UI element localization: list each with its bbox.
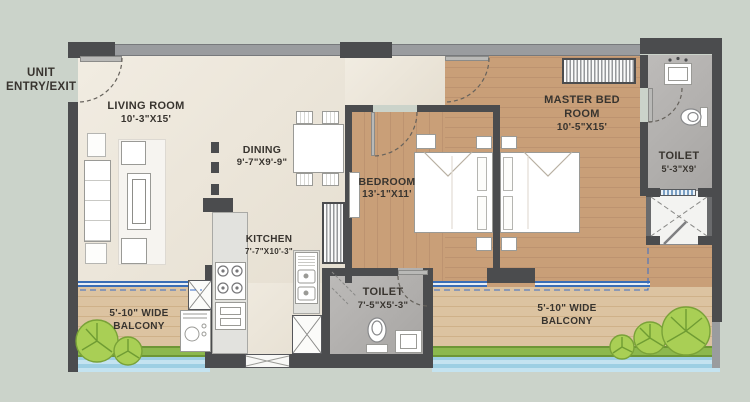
armchair-bottom <box>121 238 147 264</box>
kitchen-pillar <box>203 198 233 212</box>
entry-door-slab <box>80 56 122 62</box>
dining-chair-4 <box>322 173 339 186</box>
toilet-mid-label: TOILET 7'-5"X5'-3" <box>343 286 423 312</box>
toilet-right-door-slab <box>648 88 653 122</box>
master-nightstand-top <box>501 136 517 149</box>
bedroom-master-partition <box>493 112 500 268</box>
kitchen-dim: 7'-7"X10'-3" <box>234 247 304 257</box>
balcony-left-label: 5'-10" WIDE BALCONY <box>100 308 178 333</box>
sofa <box>84 160 111 242</box>
dining-chair-2 <box>322 111 339 124</box>
lift-corner-tl <box>646 188 660 197</box>
master-bench <box>501 237 517 251</box>
oven-inner <box>220 307 241 315</box>
dining-chair-1 <box>296 111 313 124</box>
bedroom-side-table <box>416 134 436 149</box>
dining-label: DINING 9'-7"X9'-9" <box>222 144 302 169</box>
unit-entry-label: UNIT ENTRY/EXIT <box>6 66 76 95</box>
toilet-right-wall-a <box>640 55 648 88</box>
dining-column-3 <box>211 184 219 195</box>
bedroom-nightstand-top <box>476 136 492 149</box>
kitchen-toilet-divider <box>322 268 330 354</box>
coffee-table-inner <box>132 179 146 224</box>
bedroom-bench <box>476 237 492 251</box>
balcony-right-water-edge <box>432 357 720 372</box>
bedroom-label: BEDROOM 13'-1"X11' <box>347 176 427 202</box>
lift-rail-left <box>646 197 651 236</box>
toilet-mid-basin <box>395 330 422 353</box>
toilet-right-dim: 5'-3"X9' <box>648 164 710 175</box>
bottom-wall-kitchen-b <box>290 354 302 368</box>
bedroom-pillow-2 <box>477 196 487 230</box>
oven <box>215 302 246 330</box>
balcony-right-planter <box>432 346 712 357</box>
toilet-right-label: TOILET 5'-3"X9' <box>648 150 710 175</box>
master-door-slab <box>445 56 489 61</box>
toilet-right-wc-tank <box>700 107 708 127</box>
duct-shaft-mid <box>292 315 322 354</box>
window-band-left <box>78 281 205 287</box>
toilet-mid-dim: 7'-5"X5'-3" <box>343 300 423 312</box>
master-bedroom-label: MASTER BED ROOM 10'-5"X15' <box>544 94 620 134</box>
balcony-right-label: 5'-10" WIDE BALCONY <box>528 303 606 328</box>
washer-unit <box>180 310 211 352</box>
top-wall-left <box>115 44 340 56</box>
window-band-right-2 <box>535 281 650 287</box>
bottom-window-kitchen <box>245 354 290 368</box>
toilet-right-basin <box>664 63 692 85</box>
master-bedroom-name: MASTER BED ROOM <box>544 94 620 120</box>
floor-plan: UNIT ENTRY/EXIT LIVING ROOM 10'-3"X15' D… <box>0 0 750 402</box>
dining-column-2 <box>211 162 219 173</box>
bottom-wall-toilet <box>302 354 433 368</box>
lift-corner-bl <box>646 236 660 245</box>
toilet-mid-name: TOILET <box>363 286 404 298</box>
window-band-right-1 <box>432 281 487 287</box>
balcony-left-water-edge <box>78 357 210 372</box>
toilet-right-wall-b <box>640 122 648 196</box>
master-pillow-2 <box>503 196 513 230</box>
right-wall <box>712 38 722 322</box>
armchair-top <box>121 141 146 165</box>
lift-top-vent <box>660 189 696 196</box>
bedroom-pillow-1 <box>477 157 487 191</box>
bedroom-top-wall-b <box>417 105 500 112</box>
toilet-right-name: TOILET <box>659 150 700 162</box>
living-room-name: LIVING ROOM <box>107 100 184 112</box>
toilet-right-basin-inner <box>668 67 688 81</box>
toilet-mid-door-slab <box>398 270 428 275</box>
lift-corner-tr <box>698 188 712 197</box>
toilet-mid-right-wall <box>423 268 433 354</box>
lift-corner-br <box>698 236 712 245</box>
bedroom-wardrobe <box>322 202 345 264</box>
hallway-floor <box>345 56 445 105</box>
dining-dim: 9'-7"X9'-9" <box>222 157 302 169</box>
living-room-dim: 10'-3"X15' <box>96 114 196 127</box>
duct-shaft-left <box>188 280 212 310</box>
toilet-mid-basin-inner <box>400 334 417 349</box>
bedroom-top-wall-a <box>352 105 373 112</box>
kitchen-name: KITCHEN <box>246 234 293 245</box>
toilet-mid-top-wall <box>330 268 398 276</box>
dining-chair-3 <box>296 173 313 186</box>
toilet-right-top-wall <box>640 38 722 54</box>
stove <box>215 262 246 300</box>
coffee-table <box>127 173 151 230</box>
kitchen-label: KITCHEN 7'-7"X10'-3" <box>234 234 304 257</box>
oven-inner-2 <box>220 318 241 326</box>
dining-name: DINING <box>243 144 282 156</box>
bedroom-name: BEDROOM <box>359 176 416 188</box>
master-wardrobe <box>562 58 636 84</box>
master-bedroom-dim: 10'-5"X15' <box>544 122 620 135</box>
side-chair-bottom <box>85 243 107 264</box>
side-chair-top <box>87 133 106 157</box>
bedroom-door-slab <box>371 112 375 156</box>
left-wall <box>68 102 78 372</box>
right-balcony-railing <box>712 322 720 368</box>
top-wall-right <box>392 44 640 56</box>
partition-bottom-column <box>487 268 535 283</box>
bedroom-dim: 13'-1"X11' <box>347 189 427 202</box>
bottom-wall-kitchen-a <box>205 354 245 368</box>
kitchen-sink <box>295 252 318 304</box>
living-room-label: LIVING ROOM 10'-3"X15' <box>96 100 196 126</box>
lift-rail-right <box>707 197 712 236</box>
master-pillow-1 <box>503 157 513 191</box>
sink-drainboard <box>298 255 315 268</box>
column-top-mid <box>340 42 392 58</box>
toilet-mid-wc-tank <box>366 344 388 353</box>
dining-column-1 <box>211 142 219 153</box>
